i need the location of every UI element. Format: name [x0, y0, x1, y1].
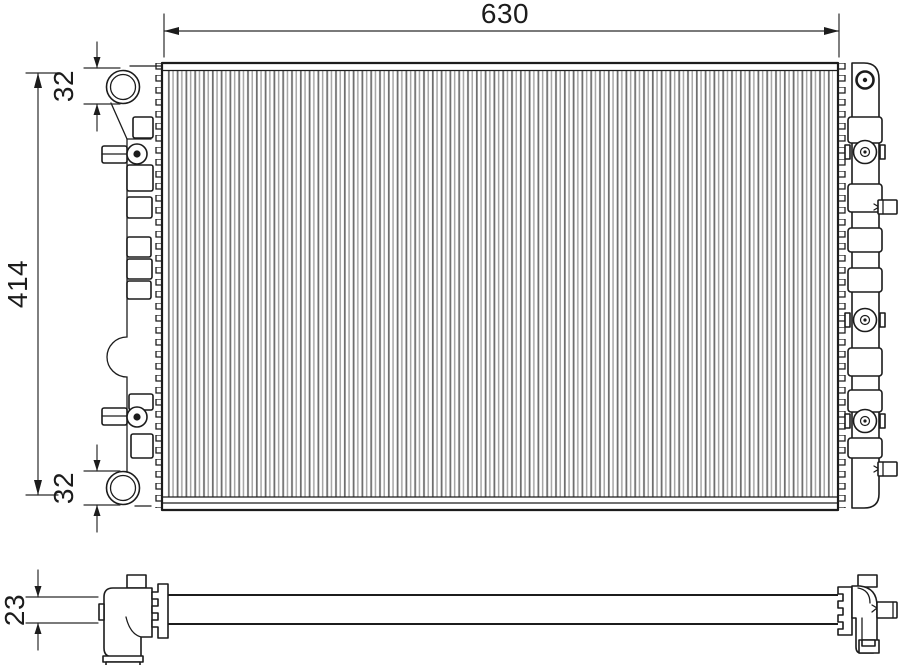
tank-block — [848, 117, 882, 143]
fitting-top-tab — [127, 575, 146, 588]
tank-block — [127, 259, 152, 279]
bolt-boss-center — [863, 150, 866, 153]
pipe-end-ring — [103, 656, 143, 662]
arrowhead-down — [35, 586, 42, 597]
arrowhead-right — [824, 27, 839, 35]
right-tank — [845, 63, 897, 508]
left-elbow-fitting — [99, 575, 168, 665]
bolt-boss-center — [863, 318, 866, 321]
bolt-boss-center — [863, 419, 866, 422]
fitting-side-tab — [99, 604, 104, 620]
arrowhead-down — [94, 57, 101, 68]
tank-block — [127, 281, 151, 299]
tank-block — [133, 117, 153, 138]
boss-ear — [845, 414, 850, 428]
right-pipe-upper — [874, 200, 897, 214]
radiator-technical-drawing: 630 414 32 32 23 — [0, 0, 900, 665]
arrowhead-up — [94, 104, 101, 115]
boss-ear — [880, 414, 885, 428]
arrowhead-up — [94, 505, 101, 516]
tank-left-edge — [107, 139, 127, 503]
mount-flange — [838, 587, 852, 635]
dimension-depth-23: 23 — [0, 570, 98, 650]
bottom-view — [99, 575, 897, 665]
arrowhead-top — [34, 73, 42, 88]
tank-block — [131, 434, 153, 458]
arrowhead-up — [35, 623, 42, 634]
arrowhead-down — [94, 460, 101, 471]
right-pipe-lower — [874, 462, 897, 476]
pipe-body — [878, 200, 897, 214]
bolt-boss-center — [133, 413, 140, 420]
pipe-body — [878, 462, 897, 476]
pipe-end-ring — [862, 640, 875, 646]
dimension-label: 32 — [48, 472, 79, 504]
arrowhead-bottom — [34, 480, 42, 495]
tank-block — [127, 197, 152, 218]
core-fins-hatching — [167, 71, 833, 497]
tank-block — [848, 348, 882, 376]
boss-ear — [845, 313, 850, 327]
radiator-drawing-page: 630 414 32 32 23 — [0, 0, 900, 665]
pipe-body — [877, 602, 897, 618]
tank-block — [848, 228, 882, 252]
outlet-port-inner — [111, 476, 136, 501]
boss-ear — [880, 313, 885, 327]
dimension-label: 32 — [48, 70, 79, 102]
tank-block — [127, 165, 153, 191]
tank-block — [848, 438, 882, 458]
dimension-label: 23 — [0, 594, 30, 626]
dimension-label: 630 — [481, 0, 529, 29]
arrowhead-left — [164, 27, 179, 35]
mount-flange — [152, 584, 168, 638]
boss-ear — [880, 145, 885, 159]
mount-hole-center — [863, 78, 867, 82]
right-elbow-fitting — [838, 575, 897, 653]
bolt-boss-center — [133, 150, 140, 157]
dimension-width-630: 630 — [164, 0, 839, 57]
radiator-core — [151, 63, 850, 510]
tank-block — [848, 268, 882, 292]
fitting-top-tab — [858, 575, 877, 587]
inlet-port-inner — [111, 75, 136, 100]
front-view — [102, 63, 897, 510]
tank-block — [127, 237, 151, 257]
boss-ear — [845, 145, 850, 159]
dimension-label: 414 — [2, 260, 33, 308]
dimension-height-414: 414 — [2, 73, 58, 495]
